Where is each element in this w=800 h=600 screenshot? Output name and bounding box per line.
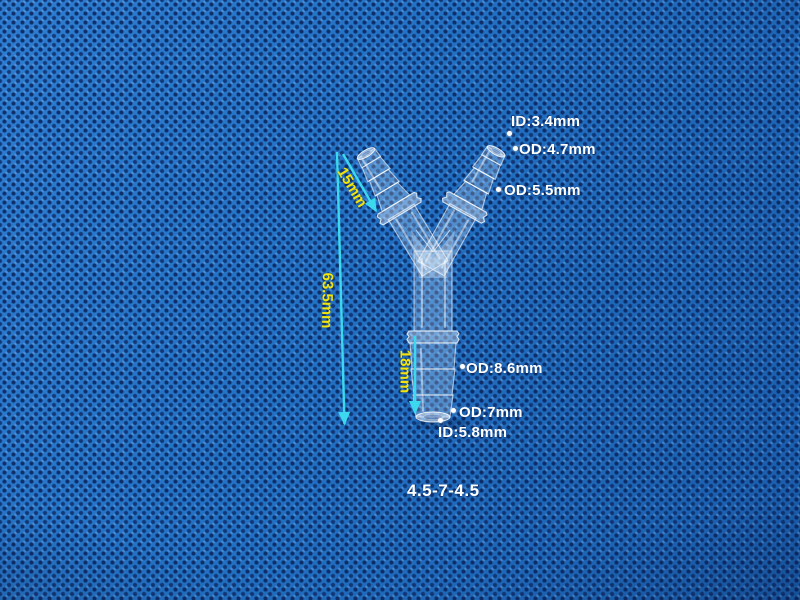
label-outer-diameter-top: OD:4.7mm [519,141,596,158]
od-stem-upper-dot [460,364,465,369]
product-photo: 15mm 63.5mm 18mm ID:3.4mm OD:4.7mm OD:5.… [0,0,800,600]
y-connector-photo [0,0,800,600]
od-right-dot [496,187,501,192]
label-outer-diameter-right: OD:5.5mm [504,182,581,199]
total-height-arrow [337,152,345,424]
total-height-dimension: 63.5mm [318,272,336,328]
label-inner-diameter-top: ID:3.4mm [511,113,580,130]
od-stem-lower-dot [451,408,456,413]
od-top-dot [513,146,518,151]
id-bottom-dot [438,418,443,423]
connector-body [344,137,519,430]
label-inner-diameter-bottom: ID:5.8mm [438,424,507,441]
label-outer-diameter-stem-upper: OD:8.6mm [466,360,543,377]
id-top-dot [507,131,512,136]
stem-length-dimension: 18mm [397,349,414,395]
label-outer-diameter-stem-lower: OD:7mm [459,404,523,421]
product-code: 4.5-7-4.5 [407,481,480,501]
